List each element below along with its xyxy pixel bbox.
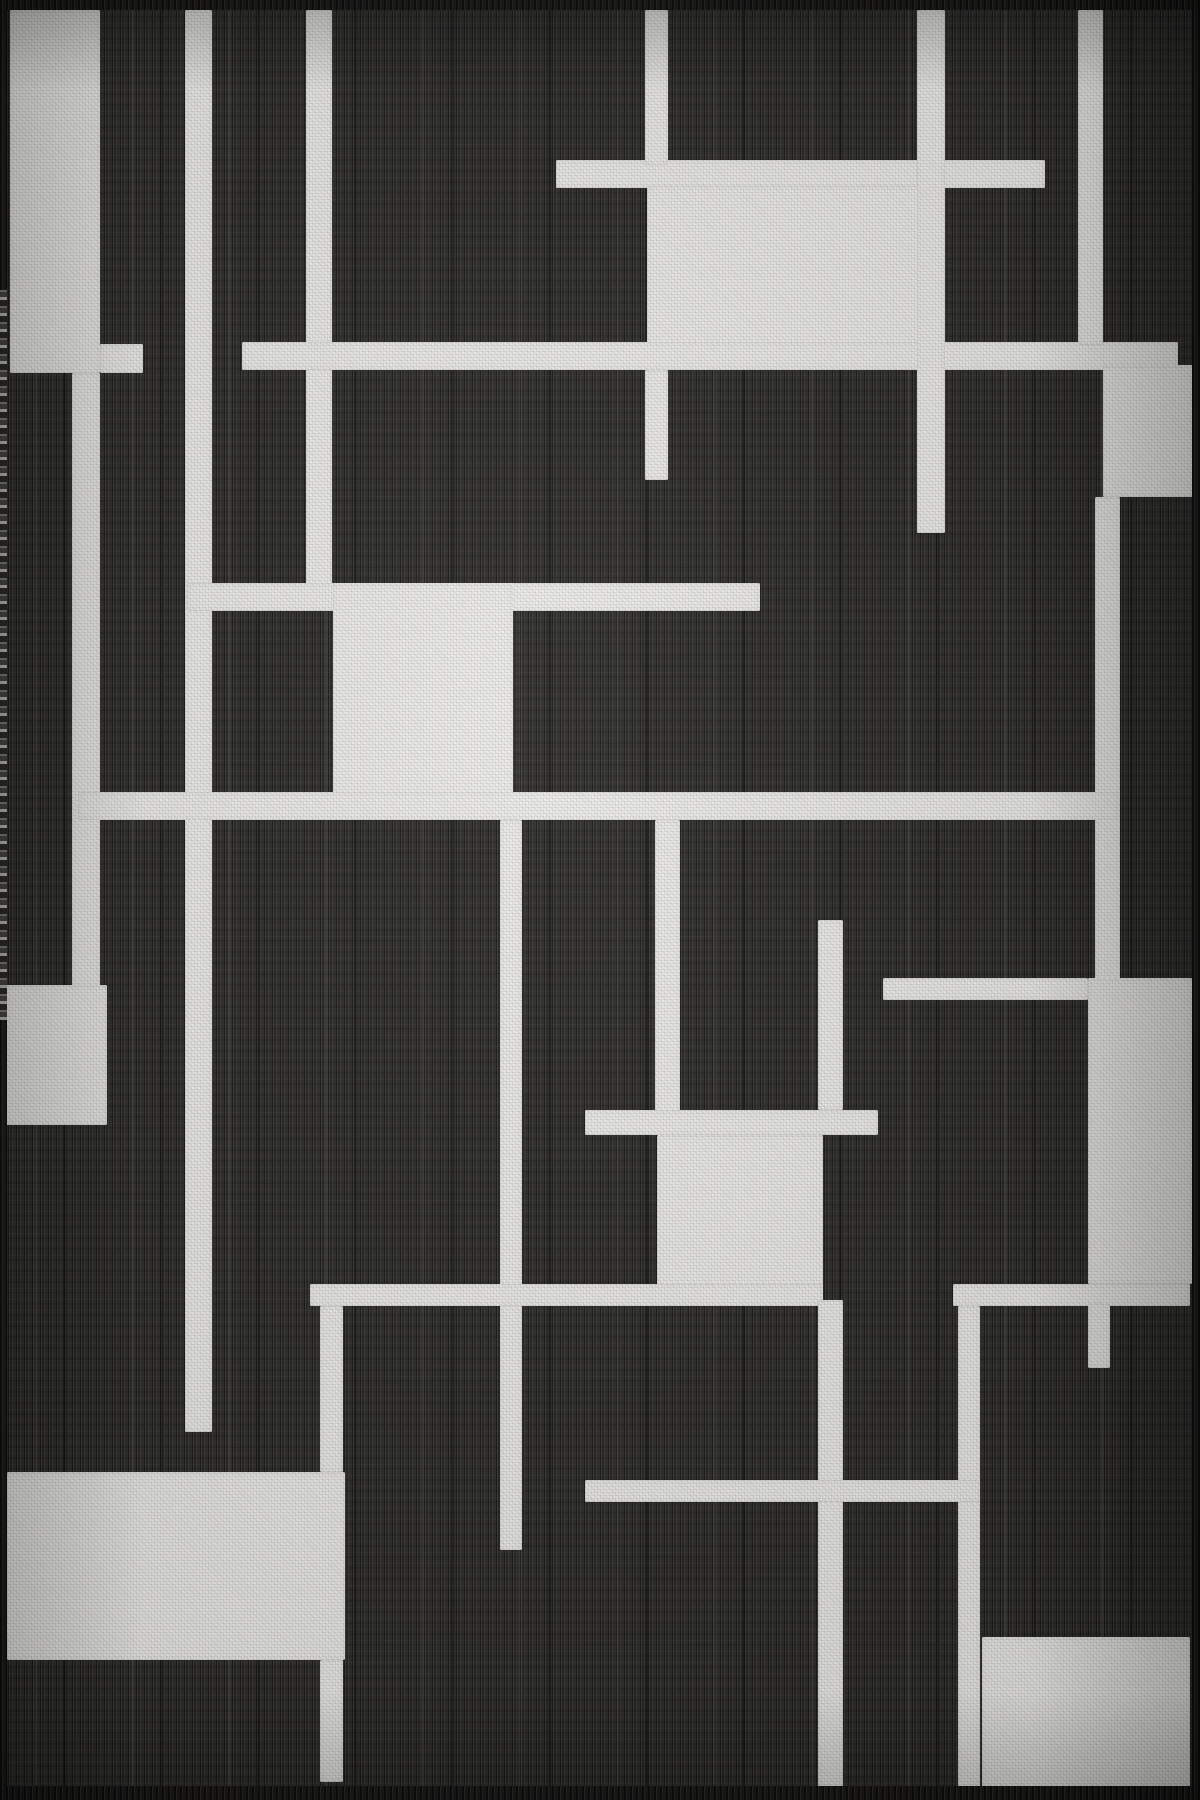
hstrip-top (556, 160, 1045, 188)
harm-h4 (883, 978, 1088, 1000)
hband-middle (78, 792, 1118, 820)
hband-upper (242, 342, 1178, 370)
vline-3-top (645, 10, 668, 165)
rect-center-left (333, 583, 513, 820)
rect-right-mid (1088, 978, 1192, 1284)
harm-h8 (585, 1110, 878, 1135)
rug-fringe-left (0, 290, 7, 1020)
vline-15 (320, 1660, 343, 1782)
vline-1 (185, 10, 212, 1432)
vline-10a (818, 920, 843, 1110)
rect-center-lower (657, 1135, 823, 1305)
hband-lower-right (953, 1284, 1190, 1306)
vline-3-stub (645, 370, 668, 480)
vline-13 (320, 1306, 343, 1472)
vline-4 (917, 10, 945, 533)
rug-photo (0, 0, 1200, 1800)
rug-edge-right (1192, 0, 1200, 1800)
hline-h7 (585, 1480, 980, 1502)
strip-left-descender (72, 373, 100, 987)
rect-left-tall (10, 10, 100, 373)
rug-edge-bottom (0, 1786, 1200, 1800)
vstub-11 (1088, 1303, 1110, 1368)
vline-14 (958, 1306, 980, 1788)
rect-left-mid (6, 985, 107, 1125)
vline-6 (1095, 497, 1120, 1000)
vline-12 (655, 820, 680, 1135)
vline-8 (500, 820, 522, 1550)
rect-right-upper (1103, 365, 1193, 497)
arm-left-rect (100, 344, 143, 373)
rug-edge-top (0, 0, 1200, 10)
vline-2 (306, 10, 332, 611)
hband-lower-left (310, 1284, 823, 1306)
rect-bottom-left (7, 1472, 345, 1660)
vline-10b (818, 1300, 843, 1788)
vline-5 (1078, 10, 1103, 345)
rect-bottom-right (982, 1637, 1190, 1787)
